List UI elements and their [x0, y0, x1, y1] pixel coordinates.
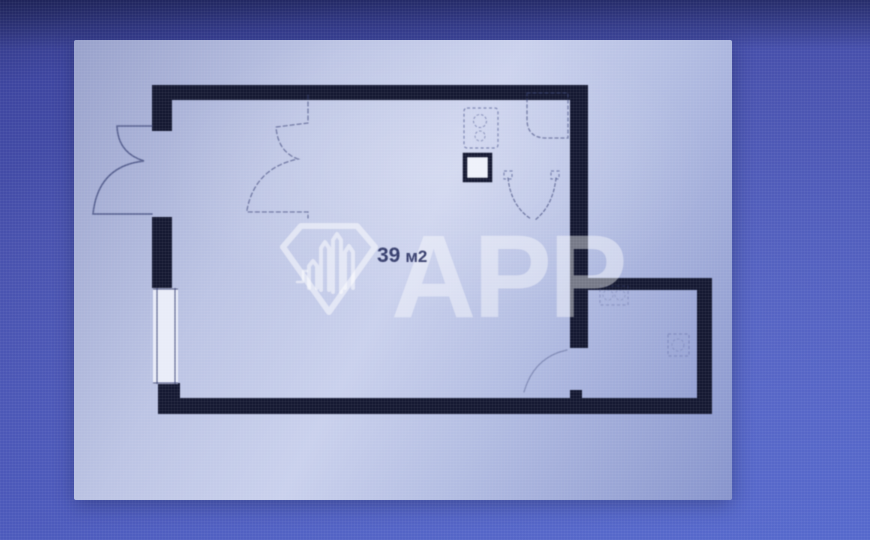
wall-bottom: [158, 398, 712, 414]
closet-dashed-outline: [247, 95, 308, 218]
watermark-text: APP: [391, 211, 625, 343]
vent-shaft: [465, 155, 490, 180]
room-door-arc: [524, 350, 567, 392]
skyline-bar-2: [321, 242, 329, 290]
skyline-bar-1: [309, 261, 317, 288]
screen-photo: APP 39м2: [0, 0, 870, 540]
bath-door-right-post: [551, 171, 559, 179]
right-room-fixture-2: [668, 334, 689, 356]
area-value: 39: [377, 244, 400, 267]
wall-left-upper: [152, 85, 172, 131]
watermark-diamond-icon: [283, 226, 375, 312]
vent-shaft-square: [465, 155, 490, 180]
floor-plan-drawing: APP 39м2: [0, 0, 870, 540]
kitchen-burner-1: [474, 115, 487, 128]
right-room-fixture-2-circle: [672, 339, 684, 351]
kitchen-unit-dashed: [464, 108, 498, 148]
wall-right-room-right: [697, 278, 712, 414]
wall-left-mid: [152, 217, 172, 288]
area-unit: м2: [405, 247, 427, 266]
watermark: APP: [283, 211, 625, 343]
entrance-double-door: [93, 126, 152, 214]
wall-right-door-stub: [570, 390, 582, 400]
wall-top: [152, 85, 588, 100]
window: [153, 288, 178, 384]
kitchen-burner-2: [475, 131, 485, 141]
skyline-bar-3: [333, 234, 341, 292]
